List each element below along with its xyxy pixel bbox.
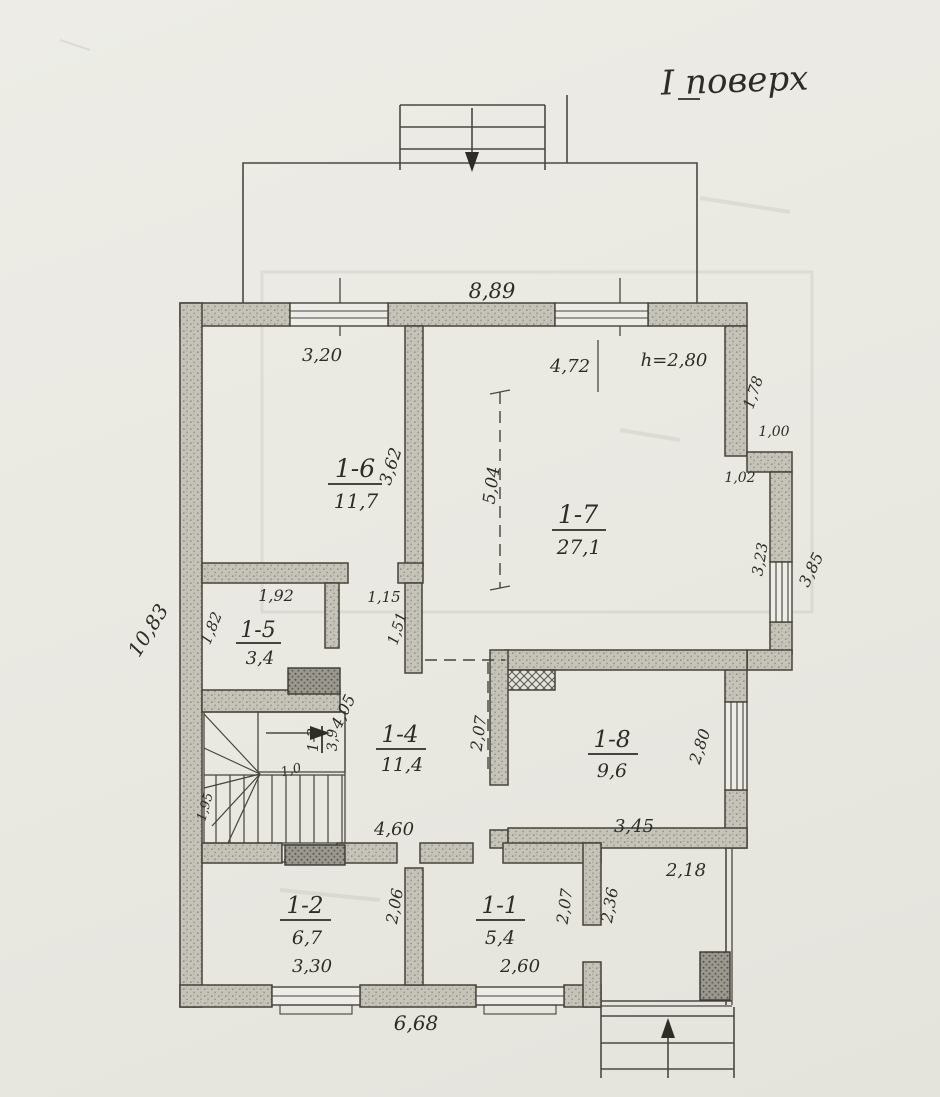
window [476, 987, 564, 1014]
scanned-floor-plan-sheet: І поверх 1-6 11,7 1-7 27,1 1-5 3,4 1-4 1… [0, 0, 940, 1097]
dim-r18-width: 3,45 [614, 816, 654, 837]
window [725, 702, 747, 790]
dim-r18-depth: 2,80 [685, 726, 714, 767]
window [555, 303, 648, 326]
room-label-1-8: 1-8 9,6 [588, 727, 638, 782]
room-area: 27,1 [556, 535, 602, 559]
bleed-through-marks [60, 40, 812, 900]
page-title: І поверх [659, 58, 809, 103]
dim-bottom-width: 6,68 [394, 1011, 439, 1035]
porch-pillar [700, 952, 730, 1000]
dim-right-notch-inner: 1,02 [724, 470, 755, 486]
entrance-porch [601, 848, 734, 1078]
room-label-1-2: 1-2 6,7 [280, 893, 331, 949]
dim-r12-depth: 2,06 [382, 887, 407, 926]
dim-hall-opening: 1,15 [367, 588, 400, 606]
room-area: 3,9 [325, 729, 341, 751]
dim-hall-width: 4,60 [373, 819, 414, 840]
room-number: 1-6 [335, 454, 375, 483]
window [290, 303, 388, 326]
room-label-1-7: 1-7 27,1 [552, 500, 606, 559]
room-area: 6,7 [292, 927, 323, 949]
top-exterior-steps [400, 95, 567, 172]
flue-box [288, 668, 340, 694]
dim-overall-height: 10,83 [123, 600, 174, 661]
note-ceiling-height: h=2,80 [641, 350, 708, 371]
room-number: 1-5 [240, 618, 275, 643]
room-number: 1-3 [304, 728, 322, 752]
dim-porch-width: 2,18 [665, 860, 706, 881]
room-number: 1-7 [558, 500, 598, 529]
dim-r12-width: 3,30 [292, 956, 332, 977]
room-number: 1-8 [593, 727, 630, 753]
dim-r15-width: 1,92 [258, 586, 294, 605]
room-area: 11,7 [334, 489, 379, 513]
room-label-1-3: 1-3 3,9 [304, 726, 341, 753]
dim-r17-depth: 5,04 [480, 465, 505, 505]
under-stair-box [285, 845, 345, 865]
room-area: 5,4 [485, 927, 515, 949]
dim-right-window-inner: 3,23 [748, 541, 772, 577]
dim-overall-width: 8,89 [469, 279, 516, 303]
dim-r16-depth: 3,62 [376, 445, 407, 487]
dim-hall-pass: 2,07 [467, 713, 491, 753]
room-area: 3,4 [246, 648, 275, 669]
dim-r16-width: 3,20 [302, 345, 342, 366]
dim-r11-width: 2,60 [499, 956, 540, 977]
dim-r17-width: 4,72 [549, 356, 590, 377]
room-area: 9,6 [597, 760, 627, 782]
room-area: 11,4 [381, 754, 423, 776]
floor-plan-drawing: І поверх 1-6 11,7 1-7 27,1 1-5 3,4 1-4 1… [0, 0, 940, 1097]
room-label-1-5: 1-5 3,4 [236, 618, 281, 669]
room-label-1-6: 1-6 11,7 [328, 454, 382, 513]
room-number: 1-1 [481, 893, 518, 919]
room-label-1-4: 1-4 11,4 [376, 722, 426, 776]
staircase [204, 712, 345, 865]
dim-right-notch-width: 1,00 [758, 424, 789, 440]
dim-right-window-outer: 3,85 [795, 549, 828, 589]
room-number: 1-2 [286, 893, 323, 919]
window [272, 987, 360, 1014]
vent-shaft [507, 670, 555, 690]
room-number: 1-4 [381, 722, 418, 748]
room-label-1-1: 1-1 5,4 [476, 893, 525, 949]
dim-r11-depth: 2,07 [553, 886, 577, 926]
window [770, 562, 792, 622]
interior-walls [202, 326, 747, 1007]
